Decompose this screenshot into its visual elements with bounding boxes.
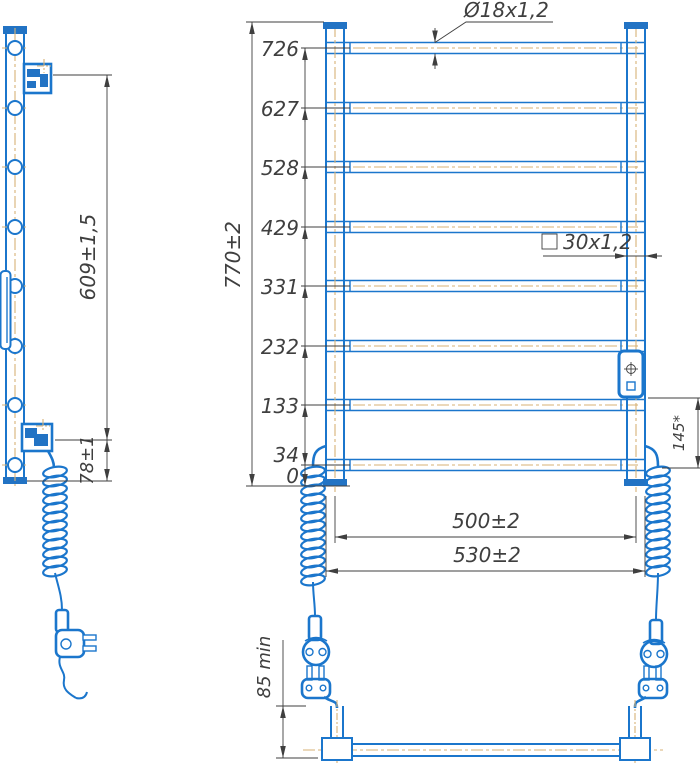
- rung-height-label: 133: [261, 394, 299, 418]
- dimension-rung-heights: 726 627 528 429 331 232 133 34 0: [246, 37, 350, 488]
- plug-clearance-label: 85 min: [254, 636, 275, 699]
- rung-height-label: 726: [261, 37, 299, 61]
- technical-drawing: 726 627 528 429 331 232 133 34 0 770±2 6…: [0, 0, 700, 765]
- overall-height-label: 770±2: [221, 221, 245, 289]
- square-tube-label: 30x1,2: [563, 230, 632, 254]
- dimension-outlet-offset: 145*: [648, 398, 700, 468]
- wall-bracket-top: [24, 59, 51, 93]
- rung: [326, 43, 645, 54]
- left-power-plug: [302, 638, 330, 699]
- rung-height-label: 331: [261, 275, 299, 299]
- rung: [326, 341, 645, 352]
- right-power-plug: [639, 640, 667, 699]
- rung: [326, 103, 645, 114]
- rung: [326, 400, 645, 411]
- left-coiled-cord: [300, 446, 326, 640]
- right-post: [624, 22, 648, 492]
- front-view: [300, 22, 670, 698]
- dimension-round-tube: Ø18x1,2: [435, 0, 553, 69]
- dimension-axis-width: 500±2: [335, 496, 636, 543]
- bottom-view: [303, 697, 663, 764]
- axis-width-label: 500±2: [452, 509, 520, 533]
- mount-bottom-label: 78±1: [77, 435, 98, 484]
- wall-bracket-bottom: [22, 419, 54, 468]
- rung-height-label: 0: [286, 464, 299, 488]
- outlet-offset-label: 145*: [670, 414, 688, 451]
- side-view: [1, 26, 97, 698]
- round-tube-label: Ø18x1,2: [463, 0, 549, 22]
- rungs: [326, 43, 645, 471]
- rung: [326, 281, 645, 292]
- dimension-mount-span: 609±1,5: [53, 75, 112, 440]
- drawing-canvas: 726 627 528 429 331 232 133 34 0 770±2 6…: [0, 0, 700, 765]
- side-power-plug: [56, 630, 96, 698]
- rung-height-label: 627: [261, 97, 299, 121]
- side-coiled-cord: [42, 465, 68, 632]
- power-switch: [619, 351, 643, 397]
- left-post: [323, 22, 347, 492]
- rung: [326, 460, 645, 471]
- rung-height-label: 528: [261, 156, 299, 180]
- overall-width-label: 530±2: [453, 543, 521, 567]
- rung-height-label: 232: [261, 335, 299, 359]
- rung: [326, 162, 645, 173]
- rung-height-label: 429: [261, 216, 299, 240]
- square-symbol: [542, 234, 557, 249]
- post-base-block: [620, 738, 650, 760]
- side-post: [3, 26, 27, 486]
- mount-span-label: 609±1,5: [76, 214, 100, 301]
- right-coiled-cord: [645, 446, 671, 644]
- switch-side-profile: [1, 271, 11, 349]
- post-base-block: [322, 738, 352, 760]
